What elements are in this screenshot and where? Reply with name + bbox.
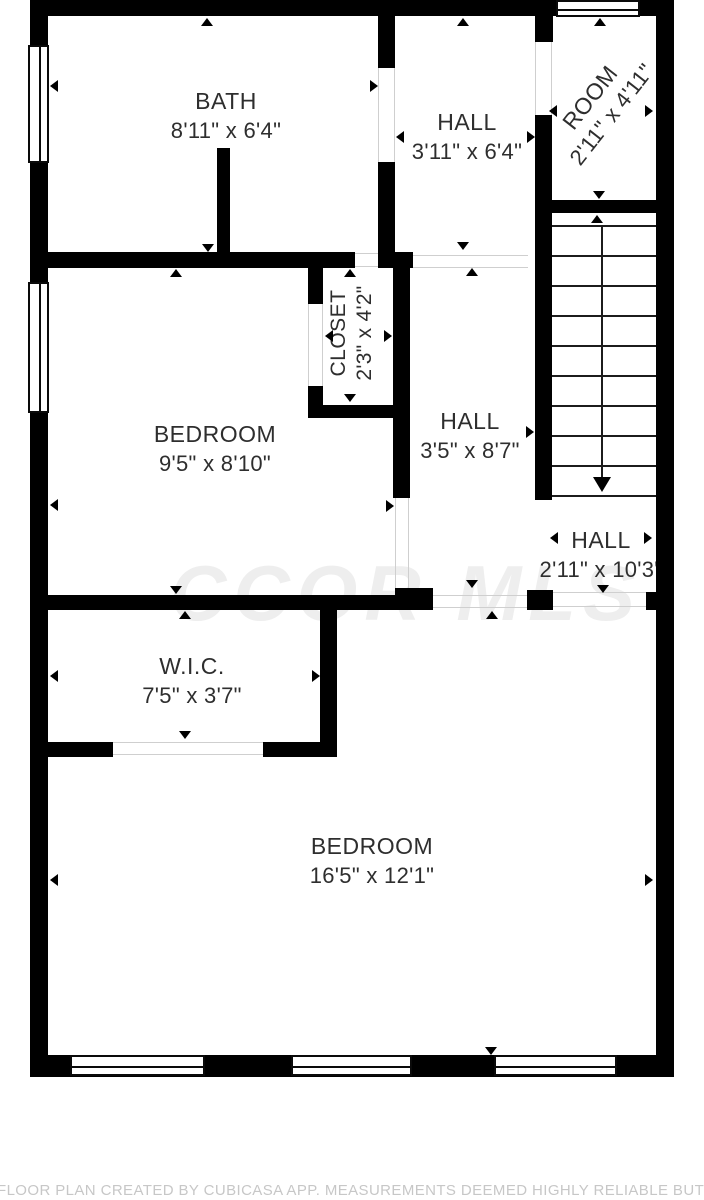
wall	[217, 148, 230, 254]
wall	[378, 162, 395, 258]
dimension-arrow-up-icon	[179, 611, 191, 619]
window	[70, 1055, 205, 1076]
dimension-arrow-left-icon	[50, 874, 58, 886]
wall	[48, 252, 355, 268]
wall	[535, 16, 553, 42]
dimension-arrow-up-icon	[344, 269, 356, 277]
dimension-arrow-right-icon	[312, 670, 320, 682]
wall	[535, 115, 552, 500]
dimension-arrow-down-icon	[170, 586, 182, 594]
room-label-bedroom-large: BEDROOM 16'5" x 12'1"	[310, 832, 435, 890]
footer-disclaimer: FLOOR PLAN CREATED BY CUBICASA APP. MEAS…	[0, 1182, 704, 1199]
dimension-arrow-right-icon	[386, 500, 394, 512]
dimension-arrow-left-icon	[50, 670, 58, 682]
dimension-arrow-down-icon	[179, 731, 191, 739]
door-opening	[433, 595, 527, 608]
room-name: HALL	[412, 108, 522, 137]
dimension-arrow-up-icon	[591, 215, 603, 223]
wall	[308, 268, 323, 304]
dimension-arrow-left-icon	[50, 80, 58, 92]
wall	[378, 252, 413, 268]
wall	[527, 590, 553, 610]
dimension-arrow-right-icon	[645, 105, 653, 117]
dimension-arrow-right-icon	[370, 80, 378, 92]
room-label-closet: CLOSET 2'3" x 4'2"	[326, 285, 378, 380]
floor-plan: CCOR MLS	[0, 0, 704, 1200]
room-name: BEDROOM	[154, 420, 276, 449]
stair-direction-line	[601, 227, 603, 479]
room-label-hall-top: HALL 3'11" x 6'4"	[412, 108, 522, 166]
room-label-bedroom-small: BEDROOM 9'5" x 8'10"	[154, 420, 276, 478]
wall	[393, 268, 410, 498]
dimension-arrow-up-icon	[486, 611, 498, 619]
room-name: BATH	[171, 87, 281, 116]
room-dimensions: 3'11" x 6'4"	[412, 137, 522, 166]
dimension-arrow-down-icon	[344, 394, 356, 402]
wall	[323, 405, 410, 418]
door-opening	[378, 68, 395, 162]
room-name: BEDROOM	[310, 832, 435, 861]
dimension-arrow-down-icon	[593, 191, 605, 199]
dimension-arrow-down-icon	[202, 244, 214, 252]
dimension-arrow-down-icon	[597, 585, 609, 593]
room-dimensions: 16'5" x 12'1"	[310, 861, 435, 890]
door-opening	[355, 253, 380, 267]
dimension-arrow-up-icon	[457, 18, 469, 26]
door-opening	[535, 40, 552, 115]
door-opening	[553, 592, 646, 607]
wall	[646, 592, 674, 610]
dimension-arrow-up-icon	[201, 18, 213, 26]
window	[28, 45, 49, 163]
window	[494, 1055, 617, 1076]
dimension-arrow-down-icon	[466, 580, 478, 588]
wall	[48, 742, 113, 757]
room-dimensions: 3'5" x 8'7"	[420, 436, 520, 465]
dimension-arrow-left-icon	[396, 131, 404, 143]
stair-down-arrow-icon	[593, 477, 611, 492]
dimension-arrow-right-icon	[526, 426, 534, 438]
wall	[535, 200, 674, 213]
window	[556, 0, 640, 17]
door-opening	[308, 303, 323, 387]
room-dimensions: 2'3" x 4'2"	[352, 285, 378, 380]
room-label-hall-mid: HALL 3'5" x 8'7"	[420, 407, 520, 465]
dimension-arrow-right-icon	[384, 330, 392, 342]
wall	[308, 386, 323, 418]
door-opening	[113, 742, 263, 755]
room-dimensions: 7'5" x 3'7"	[142, 681, 242, 710]
wall	[378, 16, 395, 68]
wall	[263, 742, 337, 757]
dimension-arrow-right-icon	[644, 532, 652, 544]
room-dimensions: 2'11" x 10'3"	[540, 555, 663, 584]
room-name: HALL	[420, 407, 520, 436]
dimension-arrow-left-icon	[550, 532, 558, 544]
room-name: W.I.C.	[142, 652, 242, 681]
dimension-arrow-down-icon	[485, 1047, 497, 1055]
passage-opening	[413, 255, 528, 268]
dimension-arrow-down-icon	[457, 242, 469, 250]
wall	[48, 595, 433, 610]
wall	[320, 610, 337, 742]
dimension-arrow-up-icon	[466, 268, 478, 276]
dimension-arrow-right-icon	[527, 131, 535, 143]
dimension-arrow-right-icon	[645, 874, 653, 886]
room-dimensions: 9'5" x 8'10"	[154, 449, 276, 478]
room-label-bath: BATH 8'11" x 6'4"	[171, 87, 281, 145]
dimension-arrow-up-icon	[594, 18, 606, 26]
wall	[656, 0, 674, 1077]
dimension-arrow-left-icon	[325, 330, 333, 342]
room-label-wic: W.I.C. 7'5" x 3'7"	[142, 652, 242, 710]
room-label-room: ROOM 2'11" x 4'11"	[542, 42, 659, 171]
window	[291, 1055, 412, 1076]
door-opening	[395, 498, 409, 588]
window	[28, 282, 49, 413]
dimension-arrow-up-icon	[170, 269, 182, 277]
room-dimensions: 8'11" x 6'4"	[171, 116, 281, 145]
dimension-arrow-left-icon	[50, 499, 58, 511]
